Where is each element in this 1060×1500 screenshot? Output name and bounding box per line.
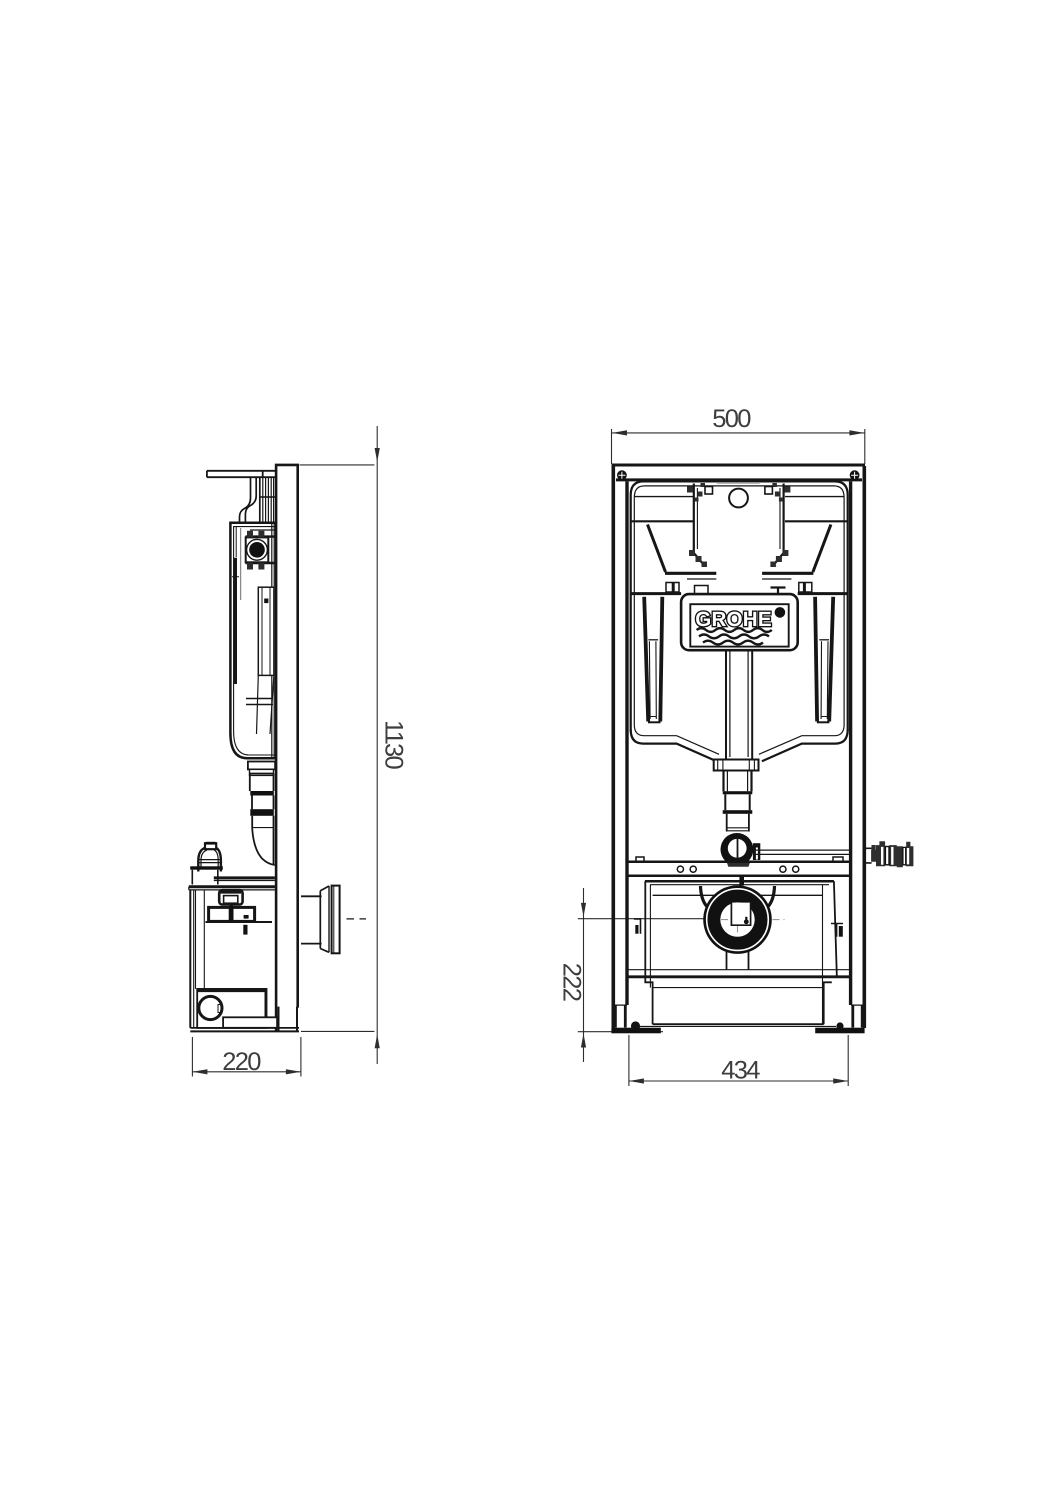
svg-text:434: 434 [721, 1057, 760, 1085]
svg-text:500: 500 [712, 405, 751, 433]
svg-text:222: 222 [558, 963, 586, 1001]
svg-text:1130: 1130 [379, 720, 407, 770]
svg-text:GROHE: GROHE [695, 608, 772, 631]
